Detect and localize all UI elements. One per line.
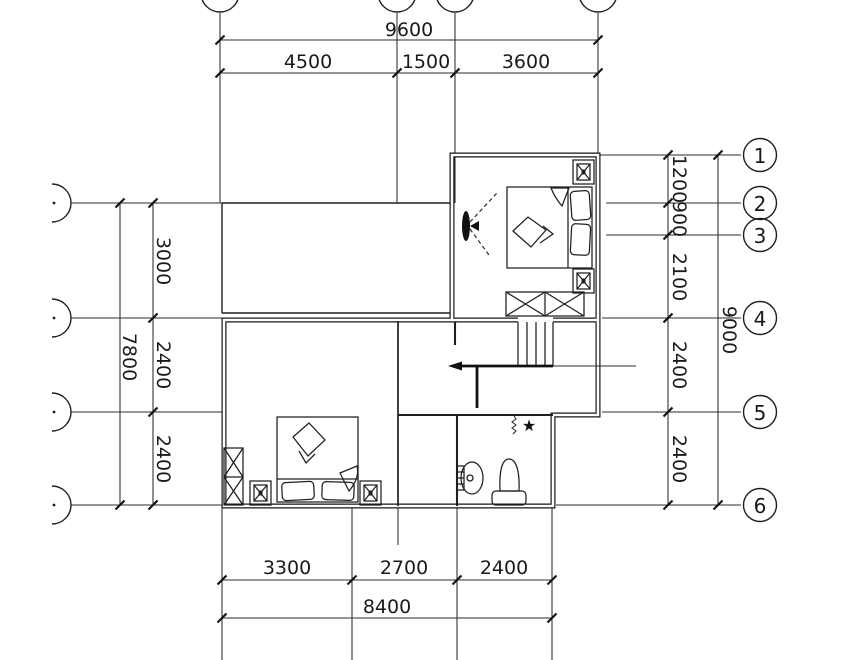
toilet xyxy=(492,459,526,505)
bathroom: ★ xyxy=(457,416,536,505)
dim-bottom-seg-1: 3300 xyxy=(263,557,311,579)
grid-bubble-3: 3 xyxy=(754,224,767,248)
pillow xyxy=(570,224,591,256)
grid-bubble-6: 6 xyxy=(754,494,767,518)
dim-right-seg-4: 2400 xyxy=(668,341,690,389)
staircase xyxy=(448,322,636,408)
wardrobe-lower xyxy=(224,448,243,505)
fixture-star-icon: ★ xyxy=(522,416,536,435)
left-dimensions: 7800 3000 2400 2400 xyxy=(71,199,223,510)
dim-top-seg-3: 3600 xyxy=(502,51,550,73)
grid-bubble-5: 5 xyxy=(754,401,767,425)
wardrobe-upper xyxy=(506,292,584,316)
grid-bubbles-left xyxy=(52,184,71,524)
terrace-outline xyxy=(222,203,452,313)
stair-direction-arrow xyxy=(448,362,462,371)
dim-left-total: 7800 xyxy=(118,333,140,381)
door-leaf xyxy=(462,211,470,241)
quilt-fold-arrow xyxy=(299,451,315,463)
pillow xyxy=(570,190,591,220)
dim-right-seg-1: 1200 xyxy=(668,155,690,203)
bed-upper xyxy=(507,187,592,268)
dim-bottom-seg-2: 2700 xyxy=(380,557,428,579)
dim-bottom-seg-3: 2400 xyxy=(480,557,528,579)
dim-right-seg-5: 2400 xyxy=(668,435,690,483)
dim-top-seg-2: 1500 xyxy=(402,51,450,73)
grid-bubble-1: 1 xyxy=(754,144,767,168)
interior-walls xyxy=(398,321,553,506)
door-arrow xyxy=(470,221,479,231)
grid-bubble-2: 2 xyxy=(754,192,767,216)
pillow xyxy=(282,481,315,501)
dim-bottom-total: 8400 xyxy=(363,596,411,618)
exterior-walls xyxy=(224,155,598,506)
bedroom-upper xyxy=(462,160,594,316)
plumbing-squiggle xyxy=(512,416,516,434)
blanket-fold xyxy=(551,188,569,206)
dim-left-seg-3: 2400 xyxy=(152,435,174,483)
bottom-dimensions: 3300 2700 2400 8400 xyxy=(218,557,557,623)
grid-bubbles-right: 1 2 3 4 5 6 xyxy=(744,139,777,522)
dim-left-seg-2: 2400 xyxy=(152,341,174,389)
sink xyxy=(457,462,483,494)
dim-top-seg-1: 4500 xyxy=(284,51,332,73)
dim-right-seg-2: 900 xyxy=(668,201,690,237)
floor-plan-page: 9600 4500 1500 3600 3300 2700 2400 8400 xyxy=(0,0,841,660)
nightstand xyxy=(250,481,271,505)
grid-bubble-4: 4 xyxy=(754,307,767,331)
right-dimensions: 1200 900 2100 2400 2400 9000 xyxy=(556,151,741,510)
dim-left-seg-1: 3000 xyxy=(152,237,174,285)
floor-plan-svg: 9600 4500 1500 3600 3300 2700 2400 8400 xyxy=(0,0,841,660)
nightstand xyxy=(573,160,594,184)
nightstand xyxy=(573,269,594,293)
top-dimensions: 9600 4500 1500 3600 xyxy=(216,19,603,78)
dim-right-total: 9000 xyxy=(718,306,740,354)
dim-right-seg-3: 2100 xyxy=(668,253,690,301)
nightstand xyxy=(360,481,381,505)
quilt xyxy=(293,423,325,456)
dim-top-total: 9600 xyxy=(385,19,433,41)
bed-lower xyxy=(277,417,358,502)
grid-bubbles-top xyxy=(201,0,617,12)
door-symbol xyxy=(462,193,497,255)
bedroom-lower xyxy=(224,417,381,505)
